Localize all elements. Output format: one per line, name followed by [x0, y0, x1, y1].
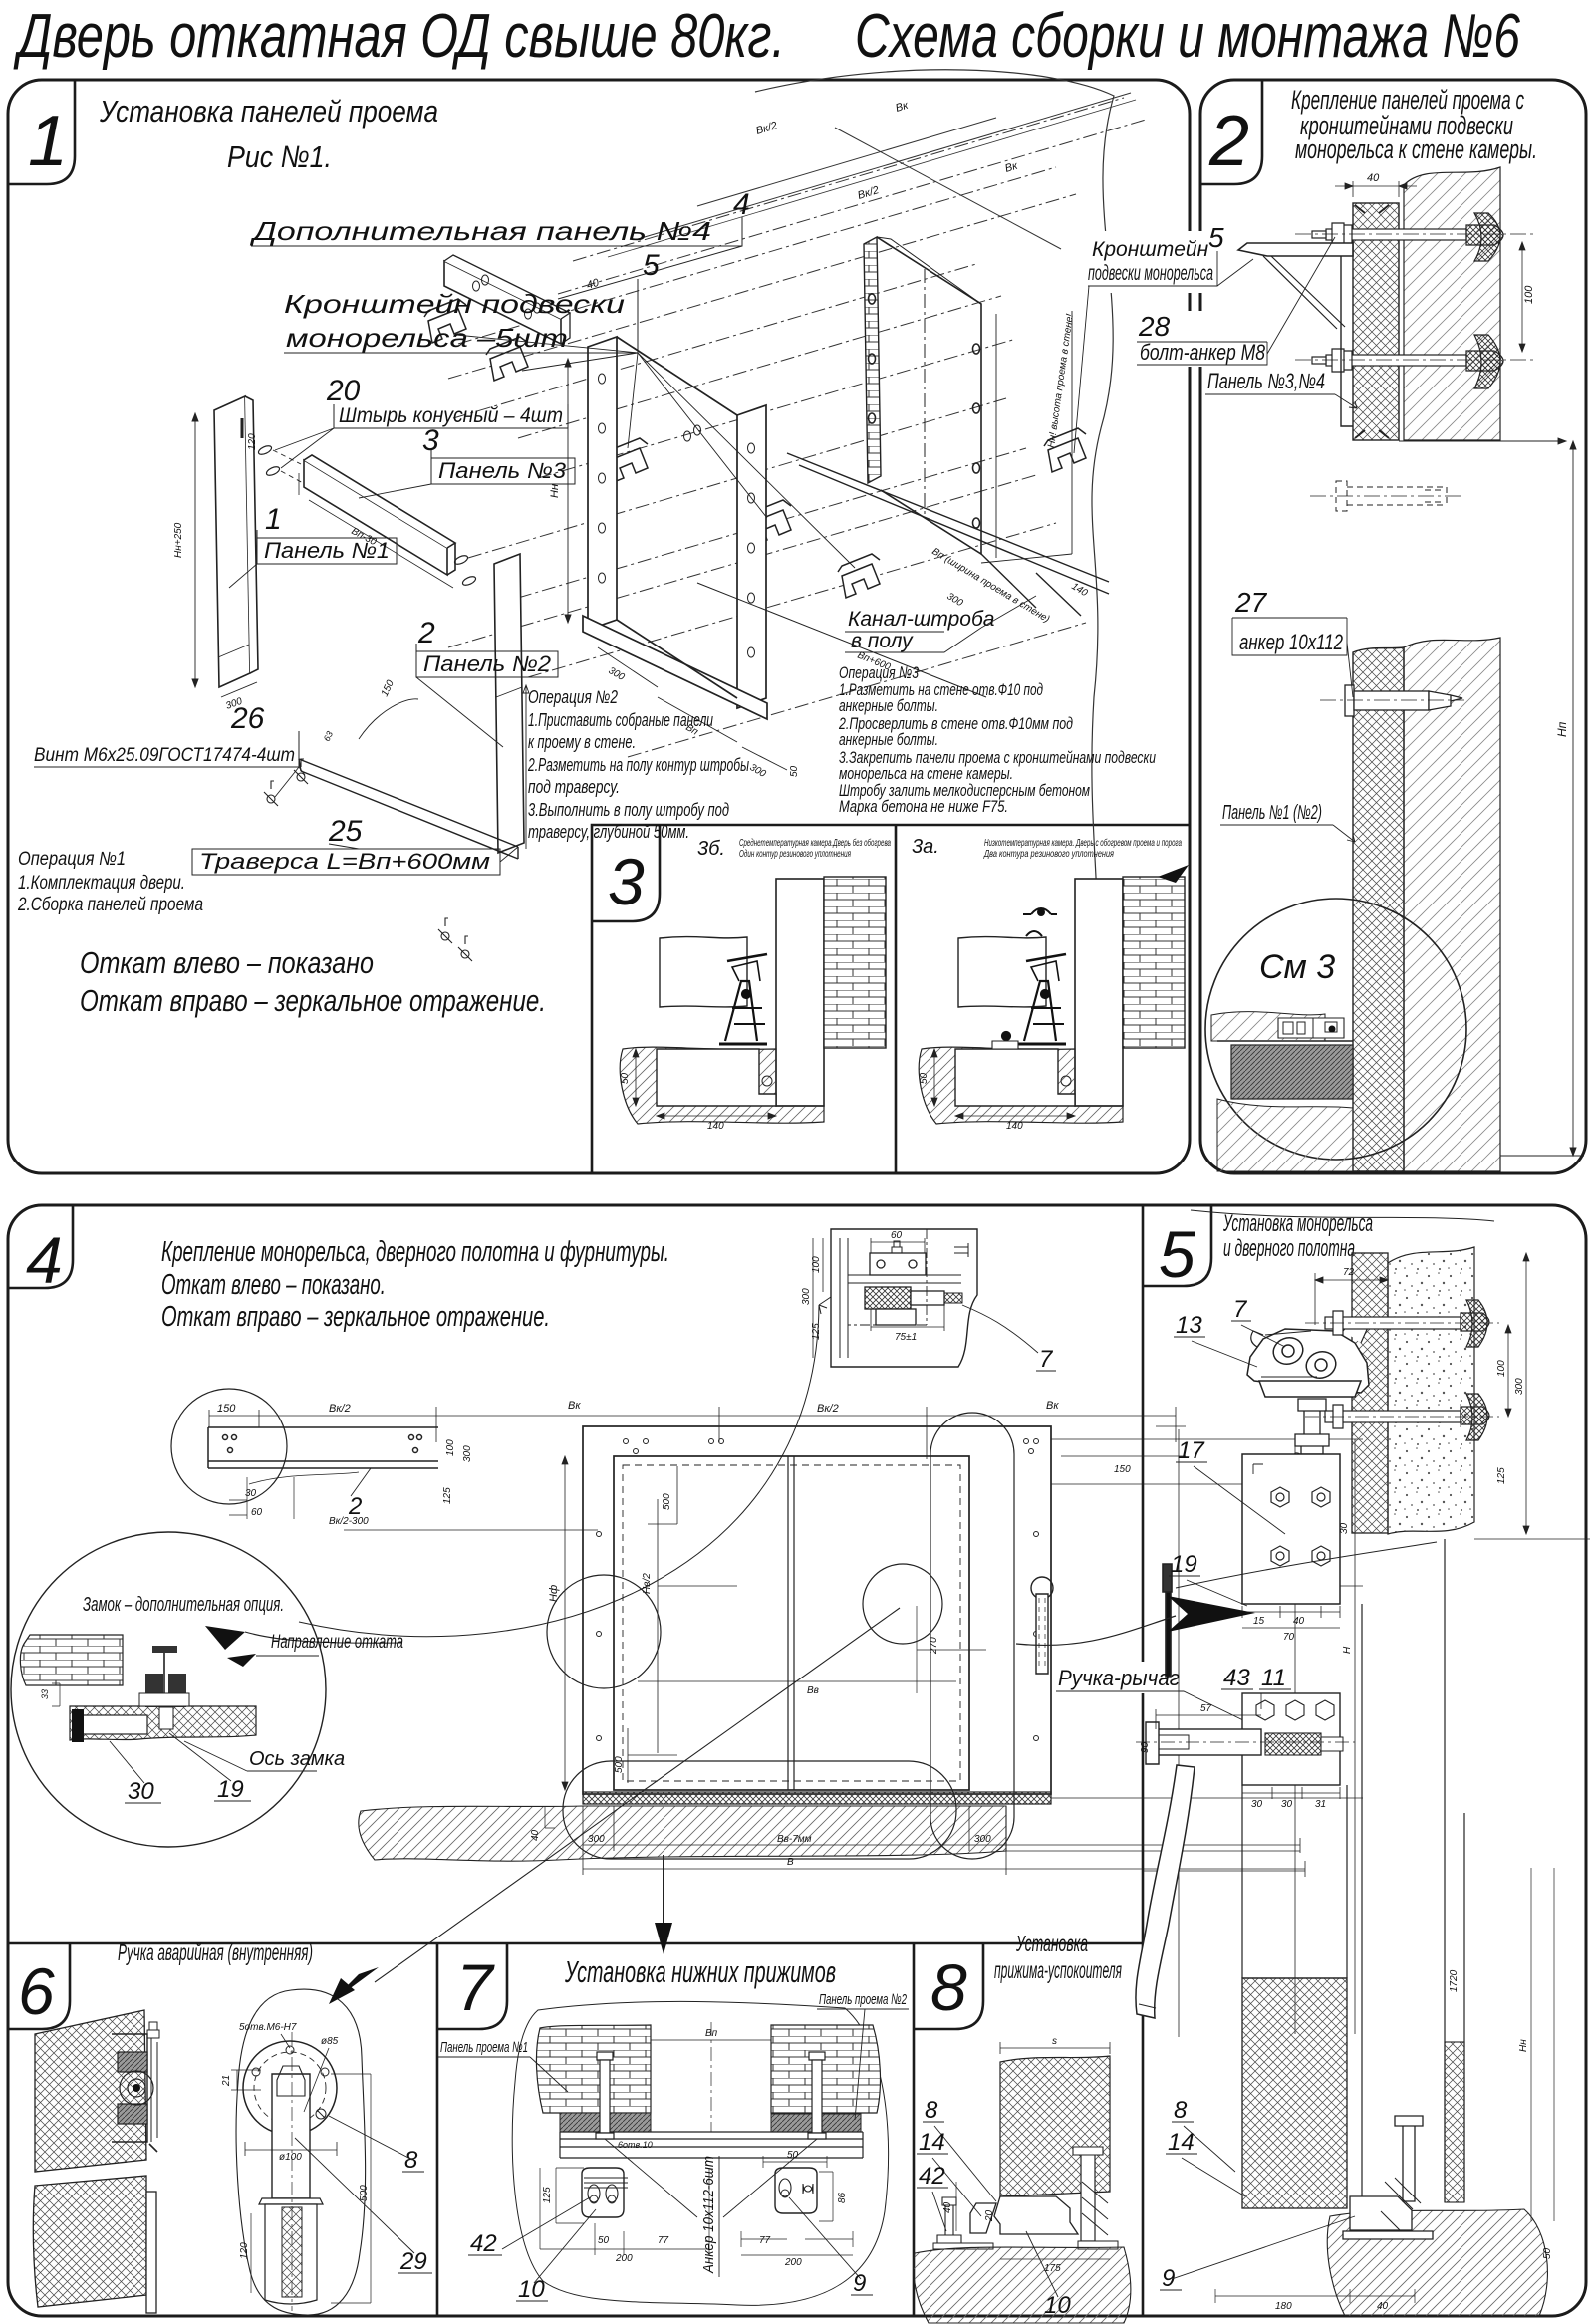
svg-text:болт-анкер М8: болт-анкер М8 [1140, 340, 1266, 365]
svg-text:200: 200 [784, 2257, 802, 2268]
svg-text:Панель проема №1: Панель проема №1 [440, 2039, 528, 2056]
svg-text:300: 300 [1514, 1378, 1525, 1395]
svg-text:100: 100 [1496, 1360, 1507, 1377]
svg-text:25: 25 [328, 815, 363, 848]
svg-text:3: 3 [608, 845, 645, 918]
svg-text:6отв.10: 6отв.10 [618, 2140, 653, 2150]
svg-text:72: 72 [1343, 1267, 1355, 1278]
svg-text:30: 30 [1251, 1799, 1263, 1810]
svg-text:20: 20 [984, 2209, 995, 2222]
svg-text:Панель проема №2: Панель проема №2 [819, 1991, 907, 2008]
svg-text:Крепление монорельса, дверного: Крепление монорельса, дверного полотна и… [161, 1236, 669, 1268]
svg-text:100: 100 [445, 1439, 456, 1456]
svg-text:30: 30 [128, 1778, 154, 1805]
svg-text:8: 8 [1174, 2097, 1188, 2124]
svg-text:9: 9 [853, 2270, 866, 2297]
svg-text:Анкер 10х112-6шт: Анкер 10х112-6шт [700, 2156, 717, 2274]
svg-text:Один контур резинового уплотне: Один контур резинового уплотнения [739, 849, 851, 860]
svg-text:Панель №1: Панель №1 [264, 538, 390, 563]
svg-text:125: 125 [442, 1487, 453, 1504]
svg-text:Рис №1.: Рис №1. [227, 139, 332, 174]
svg-text:В: В [787, 1857, 794, 1868]
svg-text:5: 5 [643, 249, 660, 282]
svg-text:6: 6 [18, 1954, 55, 2028]
svg-text:Направление отката: Направление отката [271, 1632, 403, 1653]
svg-text:2: 2 [1208, 102, 1249, 181]
svg-text:42: 42 [919, 2163, 945, 2190]
svg-text:Hп: Hп [1555, 721, 1569, 737]
svg-text:150: 150 [217, 1403, 236, 1415]
svg-text:Операция №2: Операция №2 [528, 687, 618, 707]
svg-text:Два контура резинового уплотне: Два контура резинового уплотнения [983, 849, 1114, 860]
svg-text:120: 120 [247, 433, 258, 450]
svg-text:Откат вправо – зеркальное отра: Откат вправо – зеркальное отражение. [80, 983, 546, 1018]
svg-text:8: 8 [925, 2097, 938, 2124]
svg-text:под траверсу.: под траверсу. [528, 777, 620, 797]
svg-text:Установка нижних прижимов: Установка нижних прижимов [564, 1954, 836, 1989]
svg-text:60: 60 [891, 1230, 903, 1241]
svg-text:Hн: Hн [549, 484, 561, 498]
svg-text:90: 90 [1140, 1741, 1151, 1753]
svg-text:300: 300 [462, 1445, 473, 1462]
svg-text:75±1: 75±1 [895, 1332, 917, 1343]
svg-text:3.Выполнить в полу штробу под: 3.Выполнить в полу штробу под [528, 800, 729, 820]
svg-text:70: 70 [1283, 1632, 1295, 1643]
svg-text:8: 8 [404, 2147, 418, 2174]
svg-text:17: 17 [1178, 1437, 1205, 1464]
svg-text:Панель №3,№4: Панель №3,№4 [1207, 369, 1325, 393]
svg-text:50: 50 [620, 1072, 631, 1084]
svg-text:монорельса к стене камеры.: монорельса к стене камеры. [1295, 134, 1537, 164]
svg-text:77: 77 [759, 2235, 771, 2246]
svg-text:100: 100 [811, 1256, 822, 1273]
svg-text:Вв-7мм: Вв-7мм [777, 1834, 812, 1845]
svg-text:3а.: 3а. [912, 836, 939, 858]
svg-text:300: 300 [588, 1834, 605, 1845]
svg-text:40: 40 [1377, 2301, 1389, 2312]
svg-text:анкерные болты.: анкерные болты. [839, 696, 938, 715]
svg-text:15: 15 [1253, 1616, 1265, 1627]
svg-text:125: 125 [1496, 1467, 1507, 1484]
svg-text:2: 2 [417, 617, 435, 649]
svg-text:20: 20 [326, 375, 361, 407]
svg-text:77: 77 [658, 2235, 669, 2246]
svg-text:Дополнительная панель №4: Дополнительная панель №4 [249, 216, 711, 246]
svg-text:40: 40 [530, 1829, 541, 1841]
svg-text:150: 150 [1114, 1464, 1131, 1475]
svg-text:30: 30 [1339, 1522, 1350, 1534]
svg-text:1.Приставить собраные панели: 1.Приставить собраные панели [528, 710, 713, 730]
svg-text:21: 21 [221, 2075, 232, 2087]
svg-text:Марка бетона не ниже F75.: Марка бетона не ниже F75. [839, 797, 1008, 816]
svg-text:Дверь откатная ОД свыше 80кг.: Дверь откатная ОД свыше 80кг. [13, 2, 785, 71]
svg-text:40: 40 [1367, 172, 1380, 184]
svg-text:s: s [1052, 2036, 1057, 2047]
svg-text:ø100: ø100 [279, 2152, 302, 2163]
svg-text:300: 300 [801, 1288, 812, 1305]
svg-text:Штырь конусный – 4шт: Штырь конусный – 4шт [339, 404, 563, 427]
svg-text:42: 42 [470, 2230, 497, 2257]
svg-text:Канал-штроба: Канал-штроба [848, 608, 994, 631]
svg-text:40: 40 [1293, 1616, 1305, 1627]
svg-text:50: 50 [598, 2235, 610, 2246]
svg-text:См 3: См 3 [1259, 948, 1335, 986]
svg-text:Откат вправо – зеркальное отра: Откат вправо – зеркальное отражение. [161, 1301, 550, 1333]
svg-text:40: 40 [942, 2201, 953, 2213]
svg-text:1720: 1720 [1449, 1969, 1460, 1992]
svg-text:27: 27 [1234, 587, 1268, 618]
svg-text:500: 500 [359, 2185, 370, 2201]
svg-text:500: 500 [662, 1493, 672, 1510]
svg-text:4: 4 [26, 1223, 63, 1297]
svg-text:7: 7 [1039, 1346, 1054, 1373]
svg-text:Откат влево – показано: Откат влево – показано [80, 945, 374, 980]
svg-text:Вв: Вв [807, 1685, 819, 1696]
svg-text:180: 180 [1275, 2301, 1292, 2312]
svg-text:86: 86 [837, 2192, 848, 2203]
svg-text:200: 200 [615, 2253, 633, 2264]
svg-text:120: 120 [239, 2242, 250, 2259]
svg-text:Ручка-рычаг: Ручка-рычаг [1058, 1666, 1180, 1690]
svg-text:к проему в стене.: к проему в стене. [528, 732, 636, 752]
svg-text:31: 31 [1315, 1799, 1326, 1810]
svg-text:57: 57 [1200, 1703, 1212, 1714]
svg-text:2.Сборка панелей проема: 2.Сборка панелей проема [17, 895, 203, 915]
svg-text:Hн: Hн [1518, 2039, 1529, 2052]
svg-text:Hн+250: Hн+250 [173, 522, 184, 558]
svg-text:Вк/2: Вк/2 [329, 1403, 351, 1415]
svg-text:50: 50 [789, 765, 800, 777]
svg-text:5отв.М6-Н7: 5отв.М6-Н7 [239, 2022, 297, 2033]
svg-text:в полу: в полу [851, 630, 914, 652]
svg-text:1: 1 [265, 503, 282, 536]
svg-text:Винт М6х25.09ГОСТ17474-4шт: Винт М6х25.09ГОСТ17474-4шт [34, 745, 295, 766]
svg-text:50: 50 [1542, 2247, 1553, 2259]
svg-text:30: 30 [1281, 1799, 1293, 1810]
svg-text:Ручка аварийная (внутренняя): Ручка аварийная (внутренняя) [118, 1939, 313, 1965]
svg-text:100: 100 [1523, 285, 1535, 304]
svg-text:1: 1 [28, 102, 68, 181]
svg-text:Вк: Вк [568, 1400, 581, 1412]
svg-text:Откат влево – показано.: Откат влево – показано. [161, 1269, 386, 1301]
svg-text:14: 14 [1168, 2129, 1195, 2156]
svg-text:140: 140 [1006, 1121, 1023, 1132]
svg-text:траверсу, глубиной 50мм.: траверсу, глубиной 50мм. [528, 822, 689, 842]
svg-text:Установка: Установка [1015, 1931, 1088, 1956]
svg-text:Панель №1 (№2): Панель №1 (№2) [1222, 802, 1322, 824]
svg-text:Hф: Hф [548, 1585, 560, 1602]
svg-text:Замок – дополнительная опция.: Замок – дополнительная опция. [83, 1594, 284, 1616]
svg-text:анкерные болты.: анкерные болты. [839, 730, 938, 749]
svg-text:Установка панелей проема: Установка панелей проема [99, 94, 438, 129]
svg-text:Операция №1: Операция №1 [18, 849, 126, 870]
svg-text:3б.: 3б. [697, 838, 725, 860]
svg-text:Схема сборки и монтажа №6: Схема сборки и монтажа №6 [855, 2, 1520, 71]
svg-text:175: 175 [1044, 2263, 1061, 2274]
svg-text:Кронштейн подвески: Кронштейн подвески [284, 289, 625, 319]
svg-text:19: 19 [1171, 1551, 1197, 1578]
svg-text:2.Разметить на полу контур штр: 2.Разметить на полу контур штробы [527, 755, 749, 775]
svg-text:монорельса –5шт: монорельса –5шт [286, 323, 568, 353]
svg-text:Низкотемпературная камера. Две: Низкотемпературная камера. Дверь с обогр… [984, 837, 1182, 849]
svg-text:14: 14 [919, 2129, 945, 2156]
svg-text:прижима-успокоителя: прижима-успокоителя [994, 1957, 1122, 1983]
svg-text:5: 5 [1208, 222, 1224, 253]
svg-text:125: 125 [811, 1323, 822, 1340]
svg-text:и дверного полотна: и дверного полотна [1223, 1235, 1355, 1262]
svg-text:1.Комплектация двери.: 1.Комплектация двери. [18, 873, 185, 894]
svg-text:Вк: Вк [1046, 1400, 1059, 1412]
svg-text:Кронштейн: Кронштейн [1092, 238, 1209, 261]
svg-text:2: 2 [348, 1493, 362, 1520]
svg-text:Траверса L=Вп+600мм: Траверса L=Вп+600мм [199, 849, 490, 874]
svg-text:7: 7 [1233, 1296, 1248, 1323]
svg-text:140: 140 [707, 1121, 724, 1132]
svg-text:60: 60 [251, 1507, 263, 1518]
svg-text:анкер 10х112: анкер 10х112 [1239, 630, 1343, 654]
svg-text:5: 5 [1159, 1217, 1195, 1291]
svg-text:28: 28 [1138, 311, 1171, 342]
svg-text:4: 4 [733, 188, 750, 221]
svg-text:Панель №2: Панель №2 [423, 651, 551, 676]
svg-text:300: 300 [974, 1834, 991, 1845]
svg-text:Вк/2: Вк/2 [817, 1403, 839, 1415]
svg-text:Среднетемпературная камера.Две: Среднетемпературная камера.Дверь без обо… [739, 837, 891, 849]
svg-text:13: 13 [1176, 1312, 1202, 1339]
svg-text:10: 10 [518, 2276, 545, 2303]
svg-text:26: 26 [230, 702, 265, 735]
svg-text:Панель №3: Панель №3 [438, 458, 567, 483]
svg-text:50: 50 [919, 1072, 930, 1084]
svg-text:500: 500 [614, 1756, 625, 1773]
svg-text:H: H [1342, 1646, 1353, 1654]
svg-text:11: 11 [1261, 1665, 1286, 1691]
svg-text:ø85: ø85 [321, 2036, 339, 2047]
svg-text:подвески монорельса: подвески монорельса [1088, 262, 1213, 285]
svg-text:43: 43 [1223, 1665, 1250, 1691]
svg-text:Ось замка: Ось замка [249, 1748, 345, 1770]
svg-text:7: 7 [456, 1950, 495, 2024]
svg-text:125: 125 [542, 2187, 553, 2203]
svg-text:8: 8 [930, 1950, 967, 2024]
svg-text:33: 33 [40, 1689, 50, 1699]
